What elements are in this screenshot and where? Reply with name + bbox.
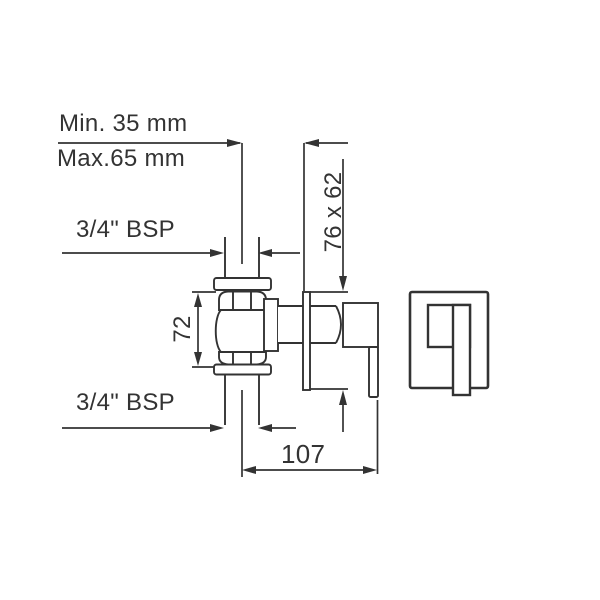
arrow-left-icon xyxy=(242,466,256,474)
overall-depth-dimension-label: 107 xyxy=(281,441,325,467)
min-depth-label: Min. 35 mm xyxy=(59,112,187,136)
drawing-linework xyxy=(0,0,600,600)
arrow-down-icon xyxy=(339,276,347,291)
outlet-flange-ring xyxy=(264,299,278,351)
outlet-tube-fill xyxy=(278,306,303,343)
top-flange-cap xyxy=(214,278,271,290)
arrow-left-icon xyxy=(258,249,272,257)
top-hex-nut xyxy=(219,292,266,311)
cartridge-taper xyxy=(336,306,341,343)
valve-body xyxy=(216,310,269,352)
technical-drawing-canvas: Min. 35 mm Max.65 mm 3/4" BSP 3/4" BSP 7… xyxy=(0,0,600,600)
handle-lever-side xyxy=(369,347,378,397)
arrow-right-icon xyxy=(227,139,242,147)
plate-front-view xyxy=(410,292,488,395)
bottom-flange-cap xyxy=(214,365,271,375)
wall-plate-side xyxy=(303,292,310,390)
bsp-bottom-label: 3/4" BSP xyxy=(76,391,175,415)
arrow-right-icon xyxy=(363,466,377,474)
handle-lever-front xyxy=(453,305,470,395)
max-depth-label: Max.65 mm xyxy=(57,147,185,171)
body-height-dimension-label: 72 xyxy=(171,315,195,342)
valve-side-view xyxy=(214,237,378,425)
arrow-right-icon xyxy=(210,249,224,257)
arrow-up-icon xyxy=(339,390,347,405)
arrow-up-icon xyxy=(194,293,202,307)
bsp-top-label: 3/4" BSP xyxy=(76,218,175,242)
arrow-right-icon xyxy=(210,424,224,432)
arrow-down-icon xyxy=(194,352,202,366)
handle-base-side xyxy=(343,303,378,347)
bottom-hex-nut xyxy=(219,352,266,365)
plate-size-dimension-label: 76 x 62 xyxy=(322,172,346,253)
arrow-left-icon xyxy=(304,139,319,147)
cartridge-tube xyxy=(310,306,336,343)
arrow-left-icon xyxy=(258,424,272,432)
